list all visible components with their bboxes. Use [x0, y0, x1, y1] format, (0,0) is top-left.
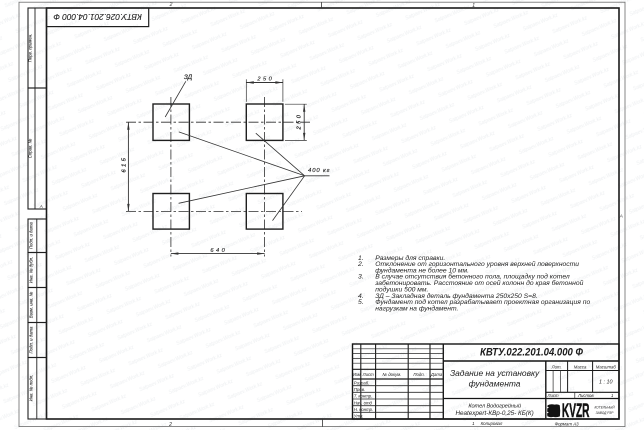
svg-text:Котел Водогрейный: Котел Водогрейный [468, 403, 521, 410]
svg-text:Копировал: Копировал [481, 421, 503, 426]
svg-text:Лист: Лист [362, 372, 374, 377]
svg-text:615: 615 [121, 157, 127, 172]
svg-text:Изм: Изм [353, 372, 361, 377]
svg-text:Инв. № дубл.: Инв. № дубл. [28, 257, 33, 283]
svg-text:1 : 10: 1 : 10 [599, 379, 613, 385]
svg-text:Задание на установку: Задание на установку [450, 368, 540, 378]
svg-text:Перв. примен.: Перв. примен. [28, 34, 33, 63]
svg-text:250: 250 [297, 114, 303, 130]
svg-text:Взам. инв. №: Взам. инв. № [28, 291, 33, 318]
svg-text:фундамента: фундамента [469, 378, 521, 388]
svg-text:№ докум.: № докум. [382, 372, 401, 377]
svg-text:Масса: Масса [574, 365, 587, 370]
svg-text:ЗАВОД РЗР: ЗАВОД РЗР [596, 411, 615, 415]
svg-text:Лит.: Лит. [551, 365, 562, 370]
svg-text:Масштаб: Масштаб [596, 365, 617, 370]
svg-text:KVZR: KVZR [562, 401, 590, 422]
svg-text:ЗД: ЗД [184, 74, 193, 81]
svg-text:А: А [39, 204, 43, 209]
svg-text:2: 2 [169, 2, 173, 8]
svg-text:Справ. №: Справ. № [28, 138, 33, 158]
svg-text:Heatexpert-КВр-0,25- КБ(К): Heatexpert-КВр-0,25- КБ(К) [455, 410, 533, 417]
svg-text:1: 1 [472, 3, 475, 9]
svg-text:нагрузкам на фундамент.: нагрузкам на фундамент. [375, 305, 458, 313]
svg-text:КОТЕЛЬНЫЙ: КОТЕЛЬНЫЙ [594, 406, 615, 410]
svg-text:КВТУ.022.201.04.000 Ф: КВТУ.022.201.04.000 Ф [480, 347, 583, 359]
svg-text:Формат А3: Формат А3 [555, 422, 580, 427]
svg-text:Листов: Листов [577, 393, 594, 398]
svg-text:Н. контр.: Н. контр. [354, 407, 373, 412]
svg-text:Дата: Дата [430, 372, 443, 377]
svg-text:Пров.: Пров. [354, 387, 365, 392]
svg-text:КВТУ.026.201.04.000 Ф: КВТУ.026.201.04.000 Ф [53, 12, 142, 22]
svg-text:Разраб.: Разраб. [354, 380, 370, 385]
svg-text:Лист: Лист [547, 393, 559, 398]
svg-text:Т. контр.: Т. контр. [354, 394, 373, 399]
svg-text:А: А [619, 214, 623, 219]
svg-text:400 кг: 400 кг [308, 168, 330, 174]
svg-text:Нач. отд: Нач. отд [354, 400, 373, 405]
svg-text:2.: 2. [357, 261, 364, 268]
svg-text:Подп. и дата: Подп. и дата [28, 326, 33, 354]
svg-text:Подп. и дата: Подп. и дата [28, 222, 33, 250]
svg-text:2: 2 [168, 422, 172, 428]
svg-text:Подп.: Подп. [413, 372, 424, 377]
svg-text:250: 250 [256, 77, 272, 83]
svg-text:640: 640 [210, 248, 225, 254]
svg-text:3.: 3. [358, 274, 364, 281]
svg-text:Утв.: Утв. [354, 414, 364, 419]
svg-text:Инв. № подл.: Инв. № подл. [28, 375, 33, 402]
svg-text:5.: 5. [358, 299, 364, 306]
